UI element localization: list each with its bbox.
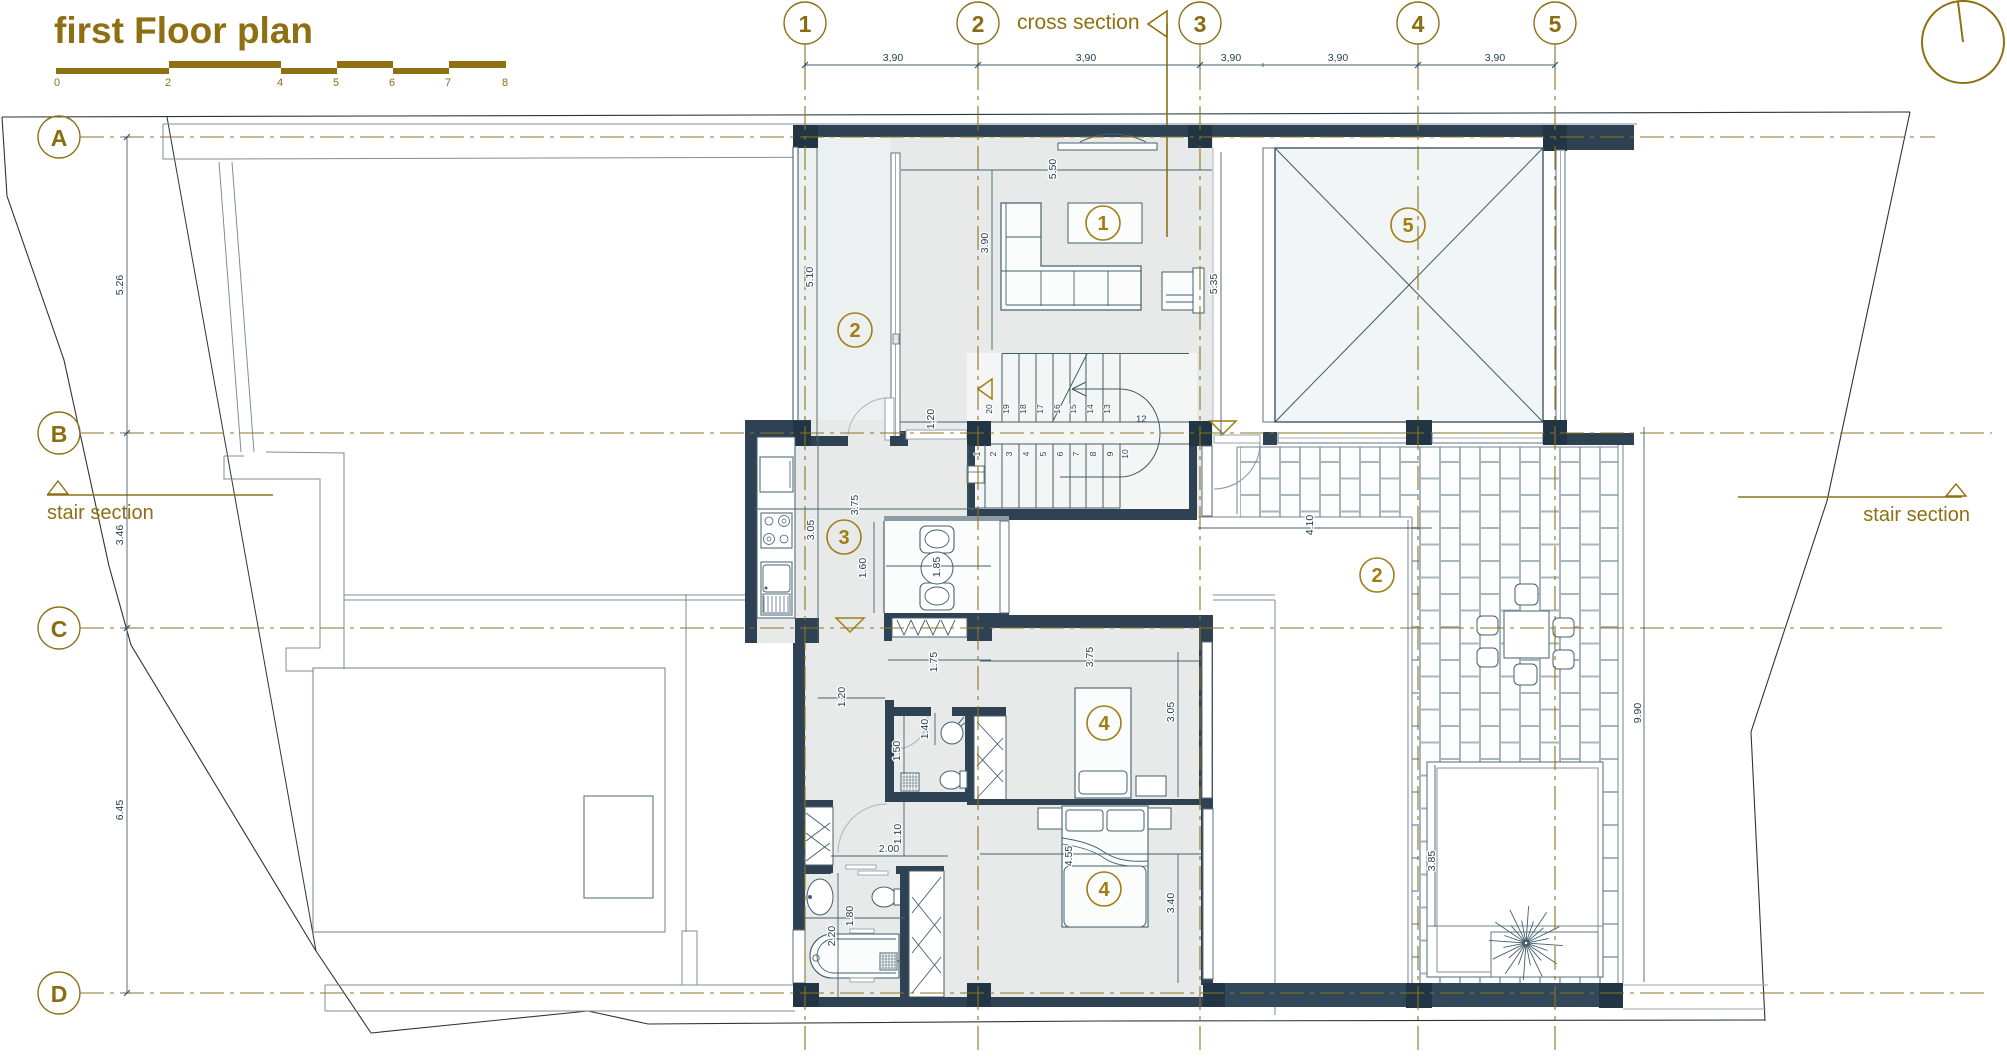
svg-text:1.50: 1.50 [891, 741, 903, 762]
svg-text:3,90: 3,90 [1221, 52, 1242, 64]
svg-text:19: 19 [1001, 404, 1011, 414]
svg-text:3,90: 3,90 [1076, 52, 1097, 64]
svg-text:stair section: stair section [47, 502, 154, 524]
svg-text:2: 2 [1371, 565, 1382, 587]
svg-text:7: 7 [1071, 451, 1081, 456]
svg-text:1.80: 1.80 [844, 906, 856, 927]
svg-text:5: 5 [333, 77, 339, 89]
svg-text:1.85: 1.85 [931, 557, 943, 578]
svg-text:12: 12 [1136, 414, 1147, 425]
svg-text:4: 4 [1098, 713, 1110, 735]
svg-text:6: 6 [1055, 451, 1065, 456]
svg-text:7: 7 [445, 77, 451, 89]
svg-text:3,90: 3,90 [883, 52, 904, 64]
svg-text:3.75: 3.75 [1084, 647, 1096, 668]
svg-text:1.75: 1.75 [928, 652, 940, 673]
svg-text:5.26: 5.26 [114, 275, 126, 296]
svg-text:1.10: 1.10 [892, 824, 904, 845]
svg-text:2: 2 [849, 320, 860, 342]
svg-text:6.45: 6.45 [114, 800, 126, 821]
svg-text:3.75: 3.75 [849, 495, 861, 516]
svg-text:cross section: cross section [1017, 11, 1140, 34]
svg-text:8: 8 [1088, 451, 1098, 456]
svg-text:6: 6 [389, 77, 395, 89]
svg-text:A: A [51, 125, 68, 151]
svg-text:3,90: 3,90 [1485, 52, 1506, 64]
svg-text:3.05: 3.05 [805, 520, 817, 541]
svg-text:1.60: 1.60 [857, 558, 869, 579]
svg-text:first Floor plan: first Floor plan [54, 10, 313, 51]
svg-text:3.90: 3.90 [979, 233, 991, 254]
svg-text:4.55: 4.55 [1063, 846, 1075, 867]
svg-text:2: 2 [165, 77, 171, 89]
svg-text:4: 4 [1098, 879, 1110, 901]
svg-text:D: D [51, 981, 68, 1007]
svg-text:5.35: 5.35 [1208, 274, 1220, 295]
svg-text:10: 10 [1120, 449, 1130, 459]
svg-text:4: 4 [1412, 11, 1425, 37]
svg-text:18: 18 [1018, 404, 1028, 414]
svg-text:1.20: 1.20 [836, 687, 848, 708]
svg-text:3: 3 [838, 527, 849, 549]
svg-text:4: 4 [1021, 451, 1031, 456]
svg-text:1: 1 [799, 11, 812, 37]
svg-text:5: 5 [1402, 215, 1413, 237]
svg-text:2: 2 [988, 451, 998, 456]
svg-text:3.85: 3.85 [1426, 851, 1438, 872]
svg-text:5: 5 [1549, 11, 1562, 37]
svg-text:9.90: 9.90 [1632, 703, 1644, 724]
svg-text:2: 2 [972, 11, 985, 37]
svg-text:stair section: stair section [1863, 504, 1970, 526]
svg-text:4.10: 4.10 [1304, 515, 1316, 536]
svg-text:3,90: 3,90 [1328, 52, 1349, 64]
svg-text:3.05: 3.05 [1165, 702, 1177, 723]
svg-text:5.10: 5.10 [804, 267, 816, 288]
svg-text:1,20: 1,20 [925, 409, 937, 430]
svg-text:5.50: 5.50 [1047, 159, 1059, 180]
svg-text:1: 1 [1097, 213, 1108, 235]
svg-text:3: 3 [1194, 11, 1207, 37]
svg-text:5: 5 [1038, 451, 1048, 456]
svg-text:4: 4 [277, 77, 283, 89]
svg-text:14: 14 [1085, 404, 1095, 414]
svg-text:C: C [51, 616, 68, 642]
svg-text:13: 13 [1102, 404, 1112, 414]
svg-text:1: 1 [972, 451, 982, 456]
svg-text:2.00: 2.00 [879, 843, 900, 855]
svg-text:16: 16 [1052, 404, 1062, 414]
svg-text:15: 15 [1068, 404, 1078, 414]
svg-text:20: 20 [984, 404, 994, 414]
svg-text:8: 8 [502, 77, 508, 89]
svg-text:3.40: 3.40 [1165, 893, 1177, 914]
svg-text:B: B [51, 421, 68, 447]
svg-text:1.40: 1.40 [919, 719, 931, 740]
svg-text:17: 17 [1035, 404, 1045, 414]
svg-text:3.46: 3.46 [114, 525, 126, 546]
svg-text:3: 3 [1004, 451, 1014, 456]
svg-text:9: 9 [1105, 451, 1115, 456]
svg-text:2.20: 2.20 [826, 926, 838, 947]
svg-text:0: 0 [54, 77, 60, 89]
